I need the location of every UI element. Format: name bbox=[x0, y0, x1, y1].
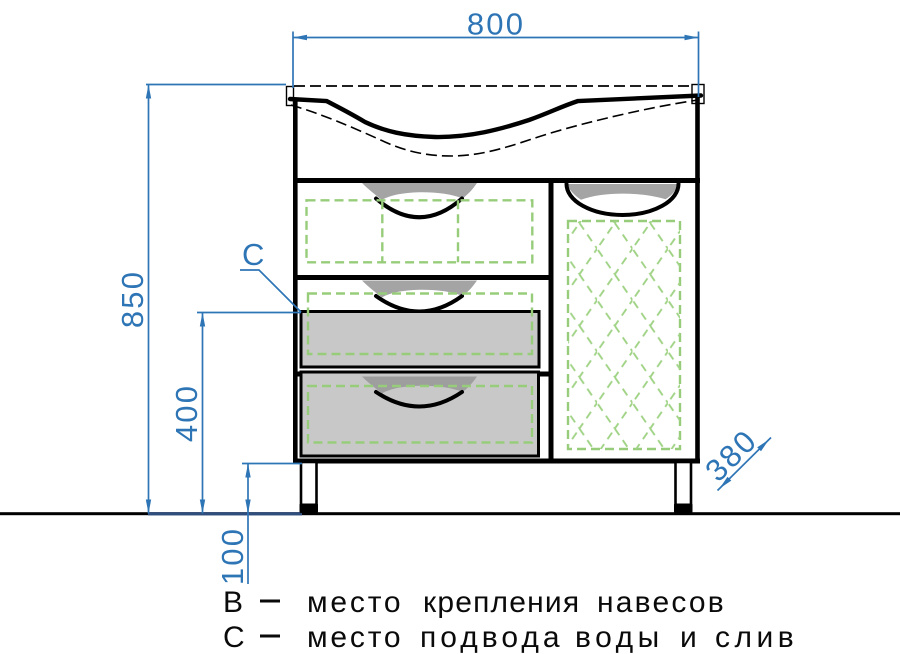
svg-text:380: 380 bbox=[698, 422, 764, 488]
svg-text:навесов: навесов bbox=[597, 586, 726, 619]
svg-text:C: C bbox=[242, 237, 264, 272]
svg-text:место: место bbox=[307, 586, 403, 619]
svg-text:воды: воды bbox=[575, 621, 664, 654]
svg-text:и: и bbox=[680, 621, 697, 654]
svg-text:400: 400 bbox=[169, 384, 204, 442]
svg-text:800: 800 bbox=[467, 7, 525, 42]
svg-text:850: 850 bbox=[115, 270, 150, 328]
svg-text:слив: слив bbox=[715, 621, 798, 654]
svg-text:место: место bbox=[307, 621, 403, 654]
svg-text:В: В bbox=[223, 586, 243, 619]
svg-text:100: 100 bbox=[215, 527, 250, 585]
svg-text:подвода: подвода bbox=[420, 621, 564, 654]
svg-text:С: С bbox=[223, 621, 245, 654]
svg-text:крепления: крепления bbox=[423, 586, 580, 619]
